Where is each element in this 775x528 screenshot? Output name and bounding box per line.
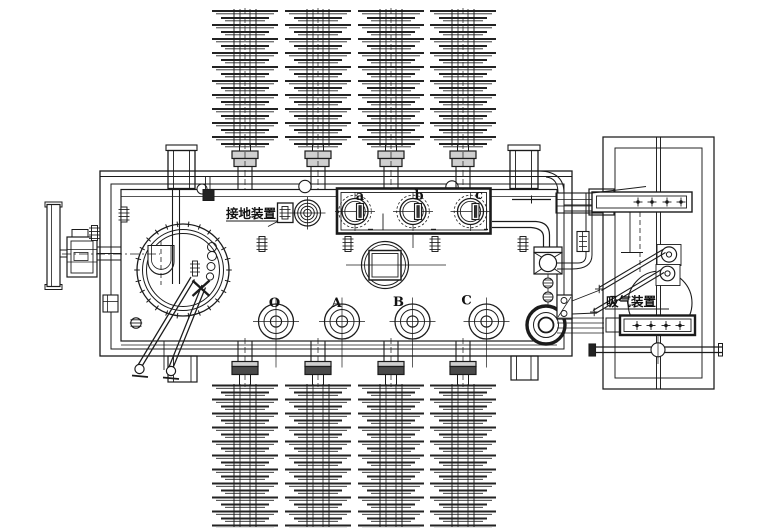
top-insulator-stacks [212,8,496,190]
bushing-label-b: b [414,189,423,204]
suction-device-label: 吸气装置 [606,294,657,309]
port-label-o: O [269,296,280,311]
bottom-insulator-stacks [212,338,496,528]
port-label-c: C [461,294,471,309]
bushing-label-c: c [475,188,483,203]
drawing-canvas: 接地装置 吸气装置 a b c O A B C [0,0,775,528]
grounding-device-label: 接地装置 [226,206,277,221]
bushing-label-a: a [356,189,365,204]
right-mechanism-frame [577,137,723,389]
port-label-b: B [393,295,404,310]
port-label-a: A [330,296,342,311]
engineering-drawing: 接地装置 吸气装置 a b c O A B C [0,0,775,528]
